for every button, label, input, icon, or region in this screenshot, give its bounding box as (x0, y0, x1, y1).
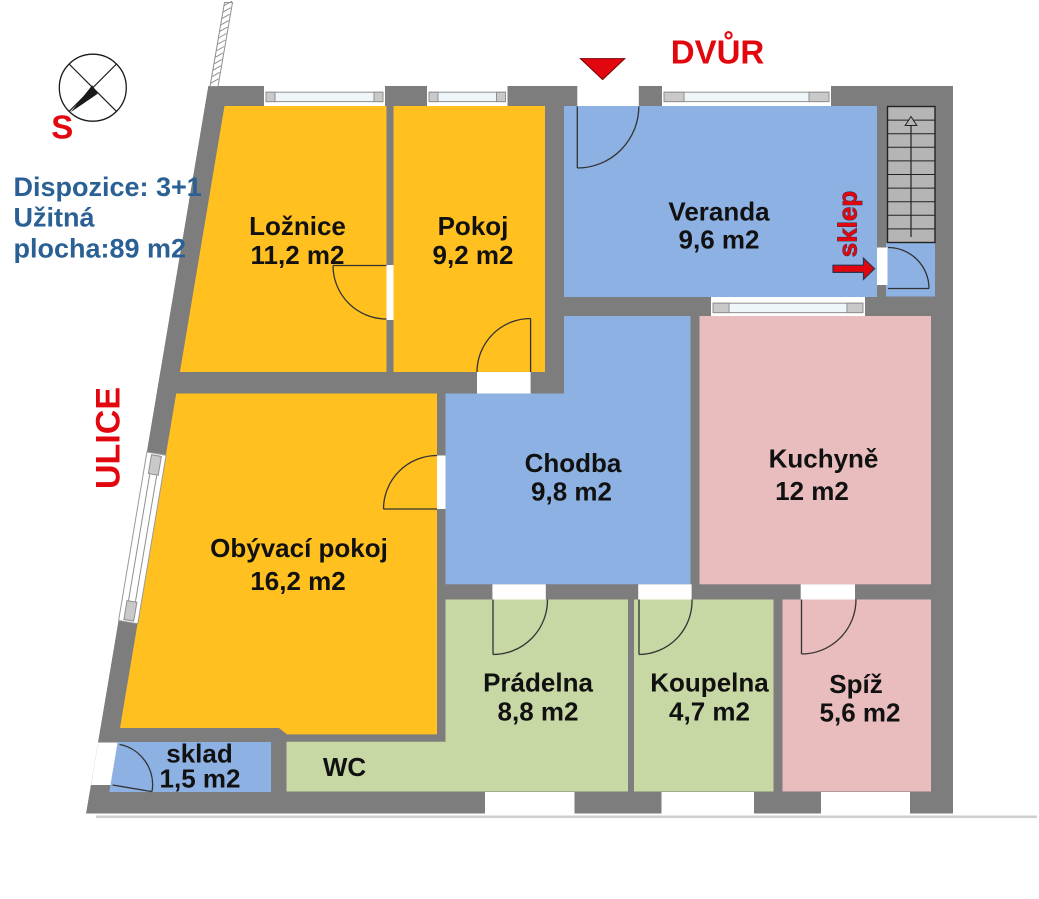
svg-text:ULICE: ULICE (90, 387, 128, 489)
svg-text:8,8 m2: 8,8 m2 (498, 697, 579, 727)
svg-text:sklep: sklep (833, 191, 863, 258)
svg-text:11,2 m2: 11,2 m2 (251, 240, 345, 270)
svg-text:9,2 m2: 9,2 m2 (433, 240, 514, 270)
svg-text:5,6 m2: 5,6 m2 (820, 698, 901, 728)
svg-text:12 m2: 12 m2 (775, 476, 849, 506)
svg-text:Užitná: Užitná (14, 203, 96, 233)
svg-text:Chodba: Chodba (525, 448, 622, 478)
svg-text:S: S (51, 108, 73, 145)
svg-text:plocha:89 m2: plocha:89 m2 (14, 234, 187, 264)
svg-text:Kuchyně: Kuchyně (769, 444, 879, 474)
svg-text:Spíž: Spíž (829, 669, 882, 699)
svg-text:9,6 m2: 9,6 m2 (679, 225, 760, 255)
svg-text:Prádelna: Prádelna (483, 668, 593, 698)
svg-text:Koupelna: Koupelna (650, 668, 769, 698)
svg-text:4,7 m2: 4,7 m2 (669, 697, 750, 727)
svg-text:DVŮR: DVŮR (671, 31, 765, 71)
svg-text:Ložnice: Ložnice (249, 211, 346, 241)
svg-text:Pokoj: Pokoj (438, 211, 509, 241)
svg-text:9,8 m2: 9,8 m2 (531, 477, 612, 507)
svg-text:16,2 m2: 16,2 m2 (250, 566, 345, 596)
svg-text:1,5 m2: 1,5 m2 (160, 764, 241, 794)
svg-text:WC: WC (323, 752, 367, 782)
svg-text:Dispozice: 3+1: Dispozice: 3+1 (14, 172, 202, 202)
svg-text:Veranda: Veranda (668, 197, 770, 227)
svg-text:Obývací pokoj: Obývací pokoj (210, 533, 388, 563)
